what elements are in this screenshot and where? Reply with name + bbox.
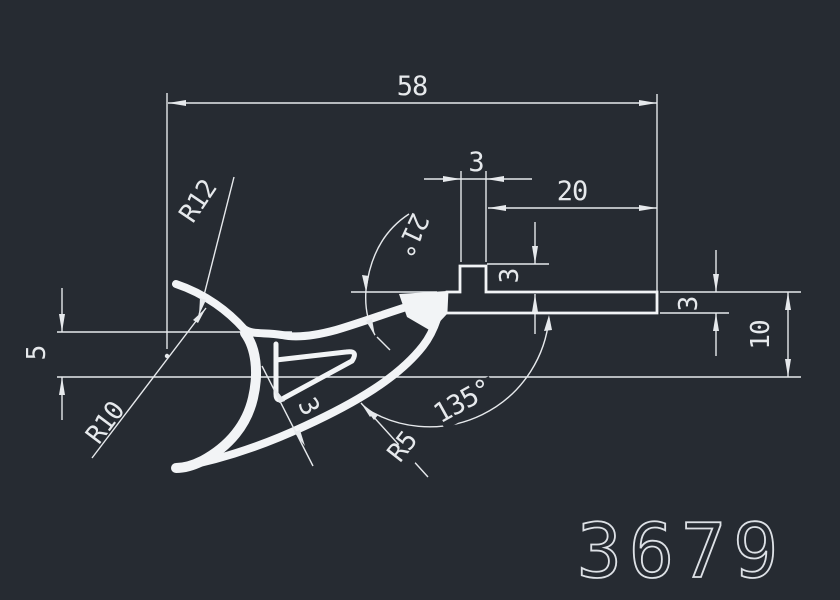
- arrow-20-left: [488, 205, 506, 211]
- dim-right-height-label: 10: [746, 320, 776, 349]
- arrow-58-right: [639, 100, 657, 106]
- dim-hook-inner-radius-label: R10: [80, 397, 130, 450]
- dim-flange-thickness-label: 3: [674, 297, 704, 312]
- dim-flange-right-length-label: 20: [557, 176, 588, 207]
- arrow-135-top: [544, 315, 552, 331]
- arc-21deg-tail: [377, 337, 390, 350]
- profile-flange-outline: [446, 266, 657, 313]
- arrow-slot-lower: [294, 430, 305, 446]
- dim-tab-height-label: 3: [495, 269, 525, 284]
- arrow-3right-top: [713, 274, 719, 292]
- arrow-20-right: [639, 205, 657, 211]
- dimension-labels: 58 3 20 3 21° 3 10 5 R12 R10 R5 3 135°: [22, 71, 776, 468]
- arrow-5-top: [59, 314, 65, 332]
- cad-drawing-canvas: 58 3 20 3 21° 3 10 5 R12 R10 R5 3 135° 3…: [0, 0, 840, 600]
- dim-tab-width-label: 3: [468, 147, 483, 178]
- arrow-step-bottom: [532, 294, 538, 312]
- dim-hook-outer-radius-label: R12: [174, 175, 223, 228]
- arrow-58-left: [168, 100, 186, 106]
- arrow-135-end: [365, 408, 378, 420]
- arrow-10-top: [785, 292, 791, 310]
- dim-left-drop-label: 5: [22, 346, 52, 361]
- arrow-3right-bottom: [713, 313, 719, 331]
- arrow-step-top: [532, 246, 538, 264]
- extension-endpoint-dot: [165, 354, 169, 358]
- dim-total-width-label: 58: [397, 71, 428, 102]
- arrow-10-bottom: [785, 359, 791, 377]
- arrow-3tab-left: [443, 176, 461, 182]
- arrow-21deg-line: [362, 275, 369, 292]
- arrowheads: [59, 100, 791, 446]
- part-number: 3679: [577, 507, 786, 595]
- profile-pennant-finger: [276, 344, 354, 400]
- arrow-5-bottom: [59, 377, 65, 395]
- arrow-3tab-right: [486, 176, 504, 182]
- dim-top-slope-angle-label: 21°: [388, 208, 434, 261]
